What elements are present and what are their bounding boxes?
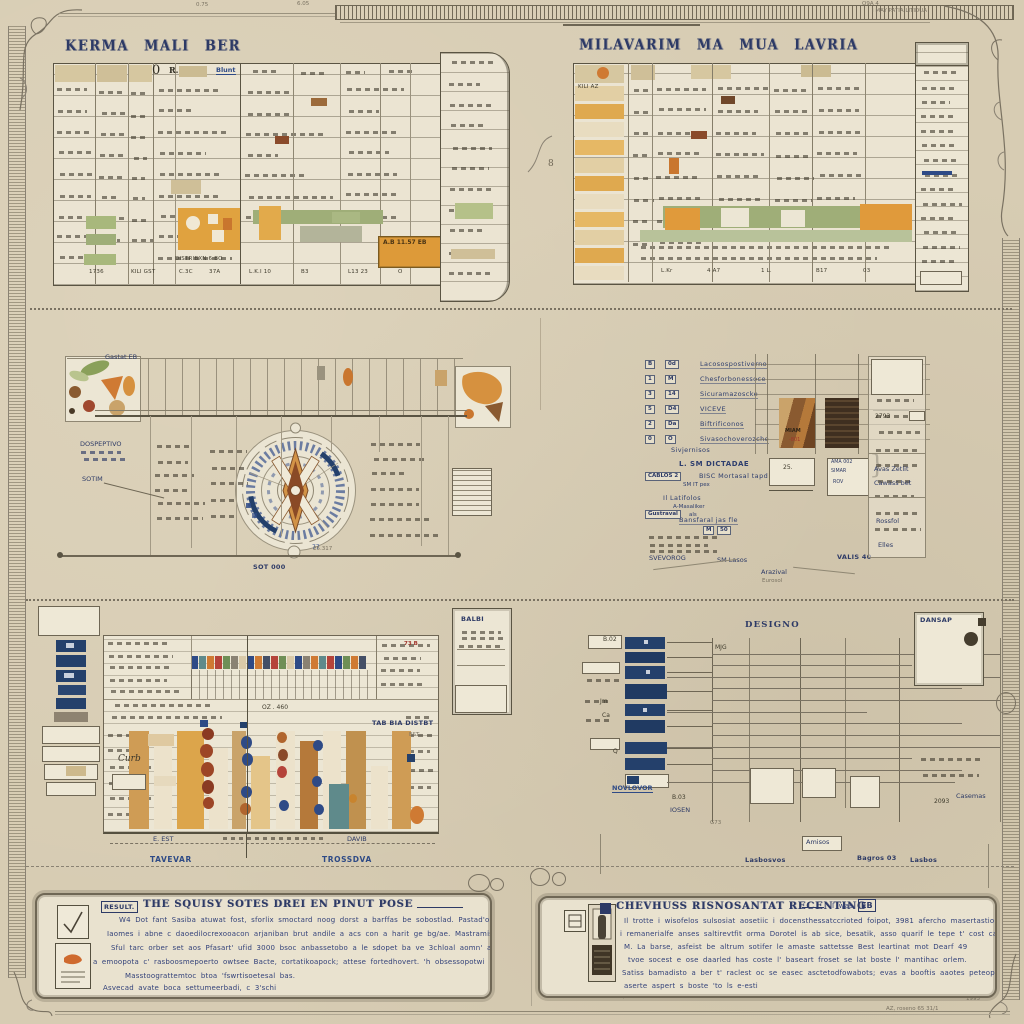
diagram-mark: DOSPEPTIVO <box>80 440 122 448</box>
schematic-mark <box>625 720 665 733</box>
pseudo-text-line <box>820 174 861 177</box>
schematic-mark <box>978 618 986 626</box>
color-tile <box>351 656 358 669</box>
chart-mark <box>276 731 295 829</box>
schematic-mark <box>712 735 1000 736</box>
legend-mark <box>56 655 86 667</box>
schematic-mark <box>667 710 712 711</box>
note-right-line: tvoe socest e ose daarled has coste l' b… <box>628 957 967 965</box>
top-left-table-title: KERMA MALI BER <box>65 38 241 55</box>
list-mark: Il Latifolos <box>663 494 701 502</box>
table-mark <box>86 216 116 229</box>
pseudo-text-line <box>131 92 148 95</box>
list-mark: M <box>703 526 714 535</box>
chart-mark <box>223 837 323 840</box>
pseudo-text-line <box>347 88 404 91</box>
table-mark <box>669 158 679 174</box>
bottom-edge-line-2 <box>55 1014 1010 1015</box>
pseudo-text-line <box>450 229 485 232</box>
sheet-mark <box>530 868 550 886</box>
table-mark: 03 <box>863 268 870 274</box>
schematic-mark: MJG <box>715 644 727 651</box>
schematic-mark <box>667 712 867 713</box>
list-mark: VALIS 40 <box>837 553 872 561</box>
collage-painting-right <box>455 366 511 428</box>
list-mark: 3 <box>645 390 655 399</box>
pseudo-text-line <box>817 197 855 200</box>
list-mark: 1 <box>645 375 655 384</box>
note-panel-left: RESULT. THE SQUISY SOTES DREI EN PINUT P… <box>35 893 492 999</box>
schematic-mark: DANSAP <box>920 616 952 624</box>
table-mark <box>84 254 116 265</box>
chart-mark <box>278 749 288 761</box>
chart-mark <box>201 762 214 777</box>
diagram-mark <box>421 416 422 546</box>
pseudo-text-line <box>587 679 619 682</box>
pseudo-text-line <box>81 451 121 454</box>
sheet-mark <box>468 874 490 892</box>
bullet-icon <box>600 903 611 914</box>
pseudo-text-line <box>157 517 203 520</box>
table-mark <box>340 63 341 284</box>
pseudo-text-line <box>155 474 193 477</box>
table-mark <box>455 203 493 219</box>
table-mark <box>652 63 653 282</box>
pseudo-text-line <box>248 91 291 94</box>
pseudo-text-line <box>409 750 430 753</box>
list-mark: Da <box>665 420 679 429</box>
pseudo-text-line <box>818 87 859 90</box>
list-mark: VICEVE <box>700 405 726 414</box>
table-mark <box>208 214 218 224</box>
pseudo-text-line <box>249 196 333 199</box>
pseudo-text-line <box>459 645 500 648</box>
pseudo-text-line <box>658 152 703 155</box>
table-mark: KILI GST <box>131 269 155 275</box>
schematic-mark <box>625 758 665 770</box>
pseudo-text-line <box>634 177 653 180</box>
note-right-title: CHEVHUSS RISNOSANTAT RECENTING <box>616 901 866 912</box>
list-mark: CABLOS 2 <box>645 472 681 481</box>
chart-mark: BALBI <box>461 615 484 623</box>
pseudo-text-line <box>374 458 429 461</box>
color-tile <box>303 656 310 669</box>
schematic-mark: Casemas <box>956 792 986 800</box>
legend-mark <box>38 606 100 636</box>
pseudo-text-line <box>650 544 708 547</box>
chart-mark <box>457 649 505 650</box>
note-left-line: a emoopota c' rasboosmepoerto owtsee Bac… <box>93 959 485 967</box>
pseudo-text-line <box>158 131 228 134</box>
pseudo-text-line <box>924 231 956 234</box>
chart-mark <box>200 744 213 758</box>
pseudo-text-line <box>211 499 237 502</box>
color-tile <box>255 656 262 669</box>
pseudo-text-line <box>923 246 961 249</box>
note-right-small: I was <box>832 903 853 911</box>
table-mark <box>55 65 95 82</box>
table-mark <box>129 65 152 82</box>
pseudo-text-line <box>84 458 127 461</box>
list-mark: Avas Zetlit <box>874 465 909 473</box>
pseudo-text-line <box>60 173 96 176</box>
diagram-mark <box>60 555 457 557</box>
diagram-mark: SOT 000 <box>253 563 286 571</box>
schematic-mark <box>667 747 1000 748</box>
pseudo-text-line <box>109 655 173 658</box>
chart-tile-strip <box>191 656 369 669</box>
note-mark <box>417 907 463 908</box>
pseudo-text-line <box>253 70 276 73</box>
table-mark <box>186 216 200 230</box>
pseudo-text-line <box>817 152 857 155</box>
pseudo-text-line <box>381 683 427 686</box>
schematic-mark: Bagros 03 <box>857 854 897 862</box>
sheet-mark <box>490 878 504 891</box>
pseudo-text-line <box>877 399 914 402</box>
pseudo-text-line <box>110 666 173 669</box>
chart-mark <box>247 636 248 832</box>
table-mark: R. <box>169 65 178 75</box>
list-mark: Sivjernisos <box>671 446 710 454</box>
pseudo-text-line <box>57 131 93 134</box>
pseudo-text-line <box>371 503 419 506</box>
chart-mark: 73 B <box>404 641 418 647</box>
color-tile <box>287 656 294 669</box>
note-left-title: THE SQUISY SOTES DREI EN PINUT POSE <box>143 899 413 910</box>
chart-mark <box>313 740 323 751</box>
top-right-table-title: MILAVARIM MA MUA LAVRIA <box>579 37 859 54</box>
pseudo-text-line <box>349 110 379 113</box>
chart-side-box: BALBI <box>452 608 512 715</box>
diagram-mark <box>236 416 237 556</box>
color-tile <box>311 656 318 669</box>
list-mark: Rossfol <box>876 517 899 525</box>
top-right-table-grid <box>573 63 919 285</box>
table-mark <box>97 65 127 82</box>
pseudo-text-line <box>879 431 924 434</box>
sheet-mark <box>563 24 700 26</box>
pseudo-text-line <box>57 88 87 91</box>
diagram-mark <box>452 468 492 516</box>
sheet-mark: 6.05 <box>297 1 309 7</box>
pseudo-text-line <box>657 88 706 91</box>
list-mark: Gustraval <box>645 510 681 519</box>
pseudo-text-line <box>450 188 492 191</box>
color-tile <box>279 656 286 669</box>
legend-mark <box>42 726 100 744</box>
list-mark: L. SM DICTADAE <box>679 460 749 468</box>
chart-mark <box>154 776 176 786</box>
schematic-mark: G73 <box>710 820 721 826</box>
note-right-line: Satiss bamadisto a ber t' raclest oc se … <box>622 970 997 978</box>
pseudo-text-line <box>371 488 419 491</box>
chart-mark: OZ . 460 <box>262 704 288 711</box>
list-mark: 2 <box>645 420 655 429</box>
pseudo-text-line <box>159 89 221 92</box>
schematic-mark <box>850 776 880 808</box>
pseudo-text-line <box>453 147 492 150</box>
sheet-mark: 0.75 <box>196 2 208 8</box>
pseudo-text-line <box>100 154 125 157</box>
table-mark <box>801 65 831 77</box>
table-mark <box>628 63 629 282</box>
pseudo-text-line <box>132 219 148 222</box>
pseudo-text-line <box>776 132 808 135</box>
schematic-mark <box>625 666 665 679</box>
schematic-mark <box>667 726 712 727</box>
table-mark <box>575 248 624 263</box>
pseudo-text-line <box>462 631 501 634</box>
table-mark <box>691 65 731 79</box>
chart-mark <box>410 806 424 824</box>
list-mark: Arazival <box>761 568 787 576</box>
diagram-mark <box>331 416 332 452</box>
bottom-edge-line <box>55 1011 1010 1012</box>
pseudo-text-line <box>451 124 484 127</box>
pseudo-text-line <box>132 177 145 180</box>
chart-mark: TAB BIA DISTBT <box>372 719 433 727</box>
list-mark: 14 <box>665 390 679 399</box>
diagram-mark: SOTIM <box>82 475 103 483</box>
list-mark: Eurosol <box>762 578 782 584</box>
pseudo-text-line <box>449 83 479 86</box>
pseudo-text-line <box>876 449 918 452</box>
table-mark: A.B 11.57 EB <box>383 239 426 246</box>
chart-mark <box>203 797 214 809</box>
table-mark: Blunt <box>216 66 236 75</box>
pseudo-text-line <box>634 132 651 135</box>
pseudo-text-line <box>133 197 145 200</box>
table-mark <box>691 131 707 139</box>
color-tile <box>191 656 198 669</box>
note-panel-right: CHEVHUSS RISNOSANTAT RECENTING I was EB … <box>538 896 997 998</box>
pseudo-text-line <box>921 115 957 118</box>
separator-top <box>30 308 1012 310</box>
table-mark <box>575 266 624 280</box>
chart-mark <box>346 731 366 829</box>
pseudo-text-line <box>248 154 278 157</box>
color-tile <box>335 656 342 669</box>
sketch-curve-8: 8 <box>520 128 570 180</box>
color-tile <box>207 656 214 669</box>
pseudo-text-line <box>633 220 651 223</box>
table-mark <box>640 230 912 242</box>
color-tile <box>319 656 326 669</box>
schematic-mark: Lasbosvos <box>745 856 786 864</box>
table-mark <box>575 212 624 227</box>
pseudo-text-line <box>924 159 957 162</box>
schematic-mark <box>712 758 912 759</box>
pseudo-text-line <box>718 87 768 90</box>
chart-mark <box>246 833 247 858</box>
table-mark <box>293 63 294 284</box>
stamp-small <box>564 910 586 932</box>
color-tile <box>239 656 246 669</box>
pseudo-text-line <box>101 133 129 136</box>
pseudo-text-line <box>924 71 957 74</box>
collage-painting-left <box>65 356 141 422</box>
diagram-mark <box>191 416 192 548</box>
chart-mark <box>251 756 270 829</box>
pseudo-text-line <box>60 195 91 198</box>
pseudo-text-line <box>774 89 807 92</box>
table-mark: C.3C <box>179 269 193 275</box>
schematic-mark: NOVLOVOR <box>612 784 653 793</box>
panel-bar-chart: 73 BOZ . 460TAB BIA DISTBTCurbEST <box>103 635 439 834</box>
diagram-mark <box>57 552 63 558</box>
column-header-box <box>916 43 968 66</box>
pseudo-text-line <box>923 203 962 206</box>
pseudo-text-line <box>59 151 94 154</box>
pseudo-text-line <box>641 246 891 249</box>
schematic-mark <box>750 768 794 804</box>
pseudo-text-line <box>921 758 980 761</box>
diagram-mark <box>379 416 380 452</box>
note-left-line: Asvecad avate boca settumeerbadi, c 3'sc… <box>103 985 276 993</box>
sheet-mark <box>531 878 532 1006</box>
pseudo-text-line <box>775 110 808 113</box>
schematic-mark <box>712 688 962 689</box>
chart-mark <box>110 843 435 844</box>
list-mark: ROV <box>833 480 843 485</box>
pseudo-text-line <box>921 217 956 220</box>
pseudo-text-line <box>158 461 188 464</box>
list-mark: Bansfaral jas fle <box>679 516 738 525</box>
table-mark <box>721 208 749 227</box>
color-tile <box>263 656 270 669</box>
chart-mark <box>200 720 208 727</box>
pseudo-text-line <box>211 482 248 485</box>
sheet-mark: O9A 4 <box>862 1 879 7</box>
schematic-mark: IOSEN <box>670 806 690 814</box>
pseudo-text-line <box>210 450 246 453</box>
pseudo-text-line <box>409 786 431 789</box>
list-mark: 0 <box>645 435 655 444</box>
table-mark <box>275 136 289 144</box>
list-mark <box>825 398 859 448</box>
list-mark: D4 <box>665 405 679 414</box>
pseudo-text-line <box>110 679 168 682</box>
chart-baseline-area: E. ESTDAVIBTAVEVARTROSSDVA <box>103 833 443 873</box>
schematic-mark: Jm <box>600 698 608 705</box>
pseudo-text-line <box>922 101 950 104</box>
table-mark: DISTRIBXN 6 BO <box>175 256 223 262</box>
schematic-mark <box>646 670 650 674</box>
technical-diagram-sheet: 8 0.756.05O9A 4I MAY PATIA LITIDUA1:5. L… <box>0 0 1024 1024</box>
diagram-mark <box>95 410 467 411</box>
schematic-mark <box>667 748 712 749</box>
table-mark: L.K.I 10 <box>249 269 271 275</box>
table-mark <box>712 63 713 282</box>
table-mark: L13 23 <box>348 269 368 275</box>
table-mark <box>575 230 624 245</box>
panel-top-right-column <box>915 42 969 292</box>
sheet-mark <box>58 13 335 14</box>
schematic-mark <box>712 665 912 666</box>
pseudo-text-line <box>132 239 153 242</box>
schematic-mark <box>988 844 989 888</box>
schematic-mark <box>712 723 962 724</box>
schematic-mark <box>625 652 665 663</box>
color-tile <box>231 656 238 669</box>
chart-mark <box>277 766 287 778</box>
pseudo-text-line <box>876 512 919 515</box>
pseudo-text-line <box>719 198 762 201</box>
color-tile <box>359 656 366 669</box>
diagram-mark: 25.317 <box>313 546 332 552</box>
pseudo-text-line <box>649 536 717 539</box>
schematic-title: DESIGNO <box>745 620 800 630</box>
note-right-line: Il trotte i wisofelos sulsosiat aosetiic… <box>624 918 994 926</box>
pseudo-text-line <box>349 151 389 154</box>
table-mark <box>153 63 154 284</box>
schematic-mark <box>667 764 712 765</box>
list-mark: Sicuramazoscke <box>700 390 758 399</box>
panel-elevation-dial-diagram: 77 Gastat EBDOSPEPTIVOSOTIM25.317SOT 000 <box>55 330 515 582</box>
pseudo-text-line <box>159 195 220 198</box>
stamp-doorway <box>588 904 616 982</box>
schematic-mark <box>644 640 648 644</box>
diagram-mark <box>455 552 461 558</box>
diagram-mark <box>448 416 449 556</box>
pseudo-text-line <box>58 110 87 113</box>
pseudo-text-line <box>160 152 207 155</box>
diagram-mark <box>281 416 282 536</box>
pseudo-text-line <box>716 132 756 135</box>
legend-mark <box>64 673 74 678</box>
chart-mark: DAVIB <box>347 835 367 843</box>
list-mark: MIAM <box>785 428 801 434</box>
schematic-mark <box>667 642 712 643</box>
list-mark: SM IT pex <box>683 482 710 488</box>
diagram-mark <box>150 416 151 556</box>
pseudo-text-line <box>462 637 504 640</box>
chart-mark <box>455 685 507 713</box>
pseudo-text-line <box>922 260 958 263</box>
legend-mark <box>66 766 86 776</box>
color-tile <box>327 656 334 669</box>
panel-wiring-schematic: DESIGNO DANSAPB.02JmCaQMJGNOVLOVORB.03IO… <box>560 608 1010 880</box>
chart-mark: Curb <box>118 754 141 764</box>
pseudo-text-line <box>134 157 147 160</box>
pseudo-text-line <box>160 173 222 176</box>
sheet-mark: I MAY PATIA LITIDUA <box>872 8 927 14</box>
table-mark: KILI AZ <box>578 84 599 90</box>
table-mark: B17 <box>816 268 827 274</box>
note-right-chip: EB <box>858 899 876 912</box>
pseudo-text-line <box>875 528 920 531</box>
color-tile <box>343 656 350 669</box>
table-mark <box>128 63 129 284</box>
note-left-badge: RESULT. <box>101 901 138 913</box>
left-border-strip <box>8 26 26 978</box>
note-right-line: aserte aspert s boste 'to ls e-esti <box>624 983 758 991</box>
schematic-mark: B.02 <box>603 636 617 643</box>
chart-mark: TAVEVAR <box>150 855 192 864</box>
chart-mark: EST <box>409 732 419 738</box>
schematic-mark: Amisos <box>806 838 829 846</box>
pseudo-text-line <box>211 515 235 518</box>
schematic-mark <box>964 632 978 646</box>
schematic-mark <box>712 700 1000 701</box>
chart-mark <box>202 780 214 794</box>
chart-mark <box>312 776 322 787</box>
table-mark: 1 L. <box>761 268 772 274</box>
pseudo-text-line <box>452 61 493 64</box>
elevation-hatch <box>148 358 460 415</box>
list-mark <box>769 490 813 491</box>
